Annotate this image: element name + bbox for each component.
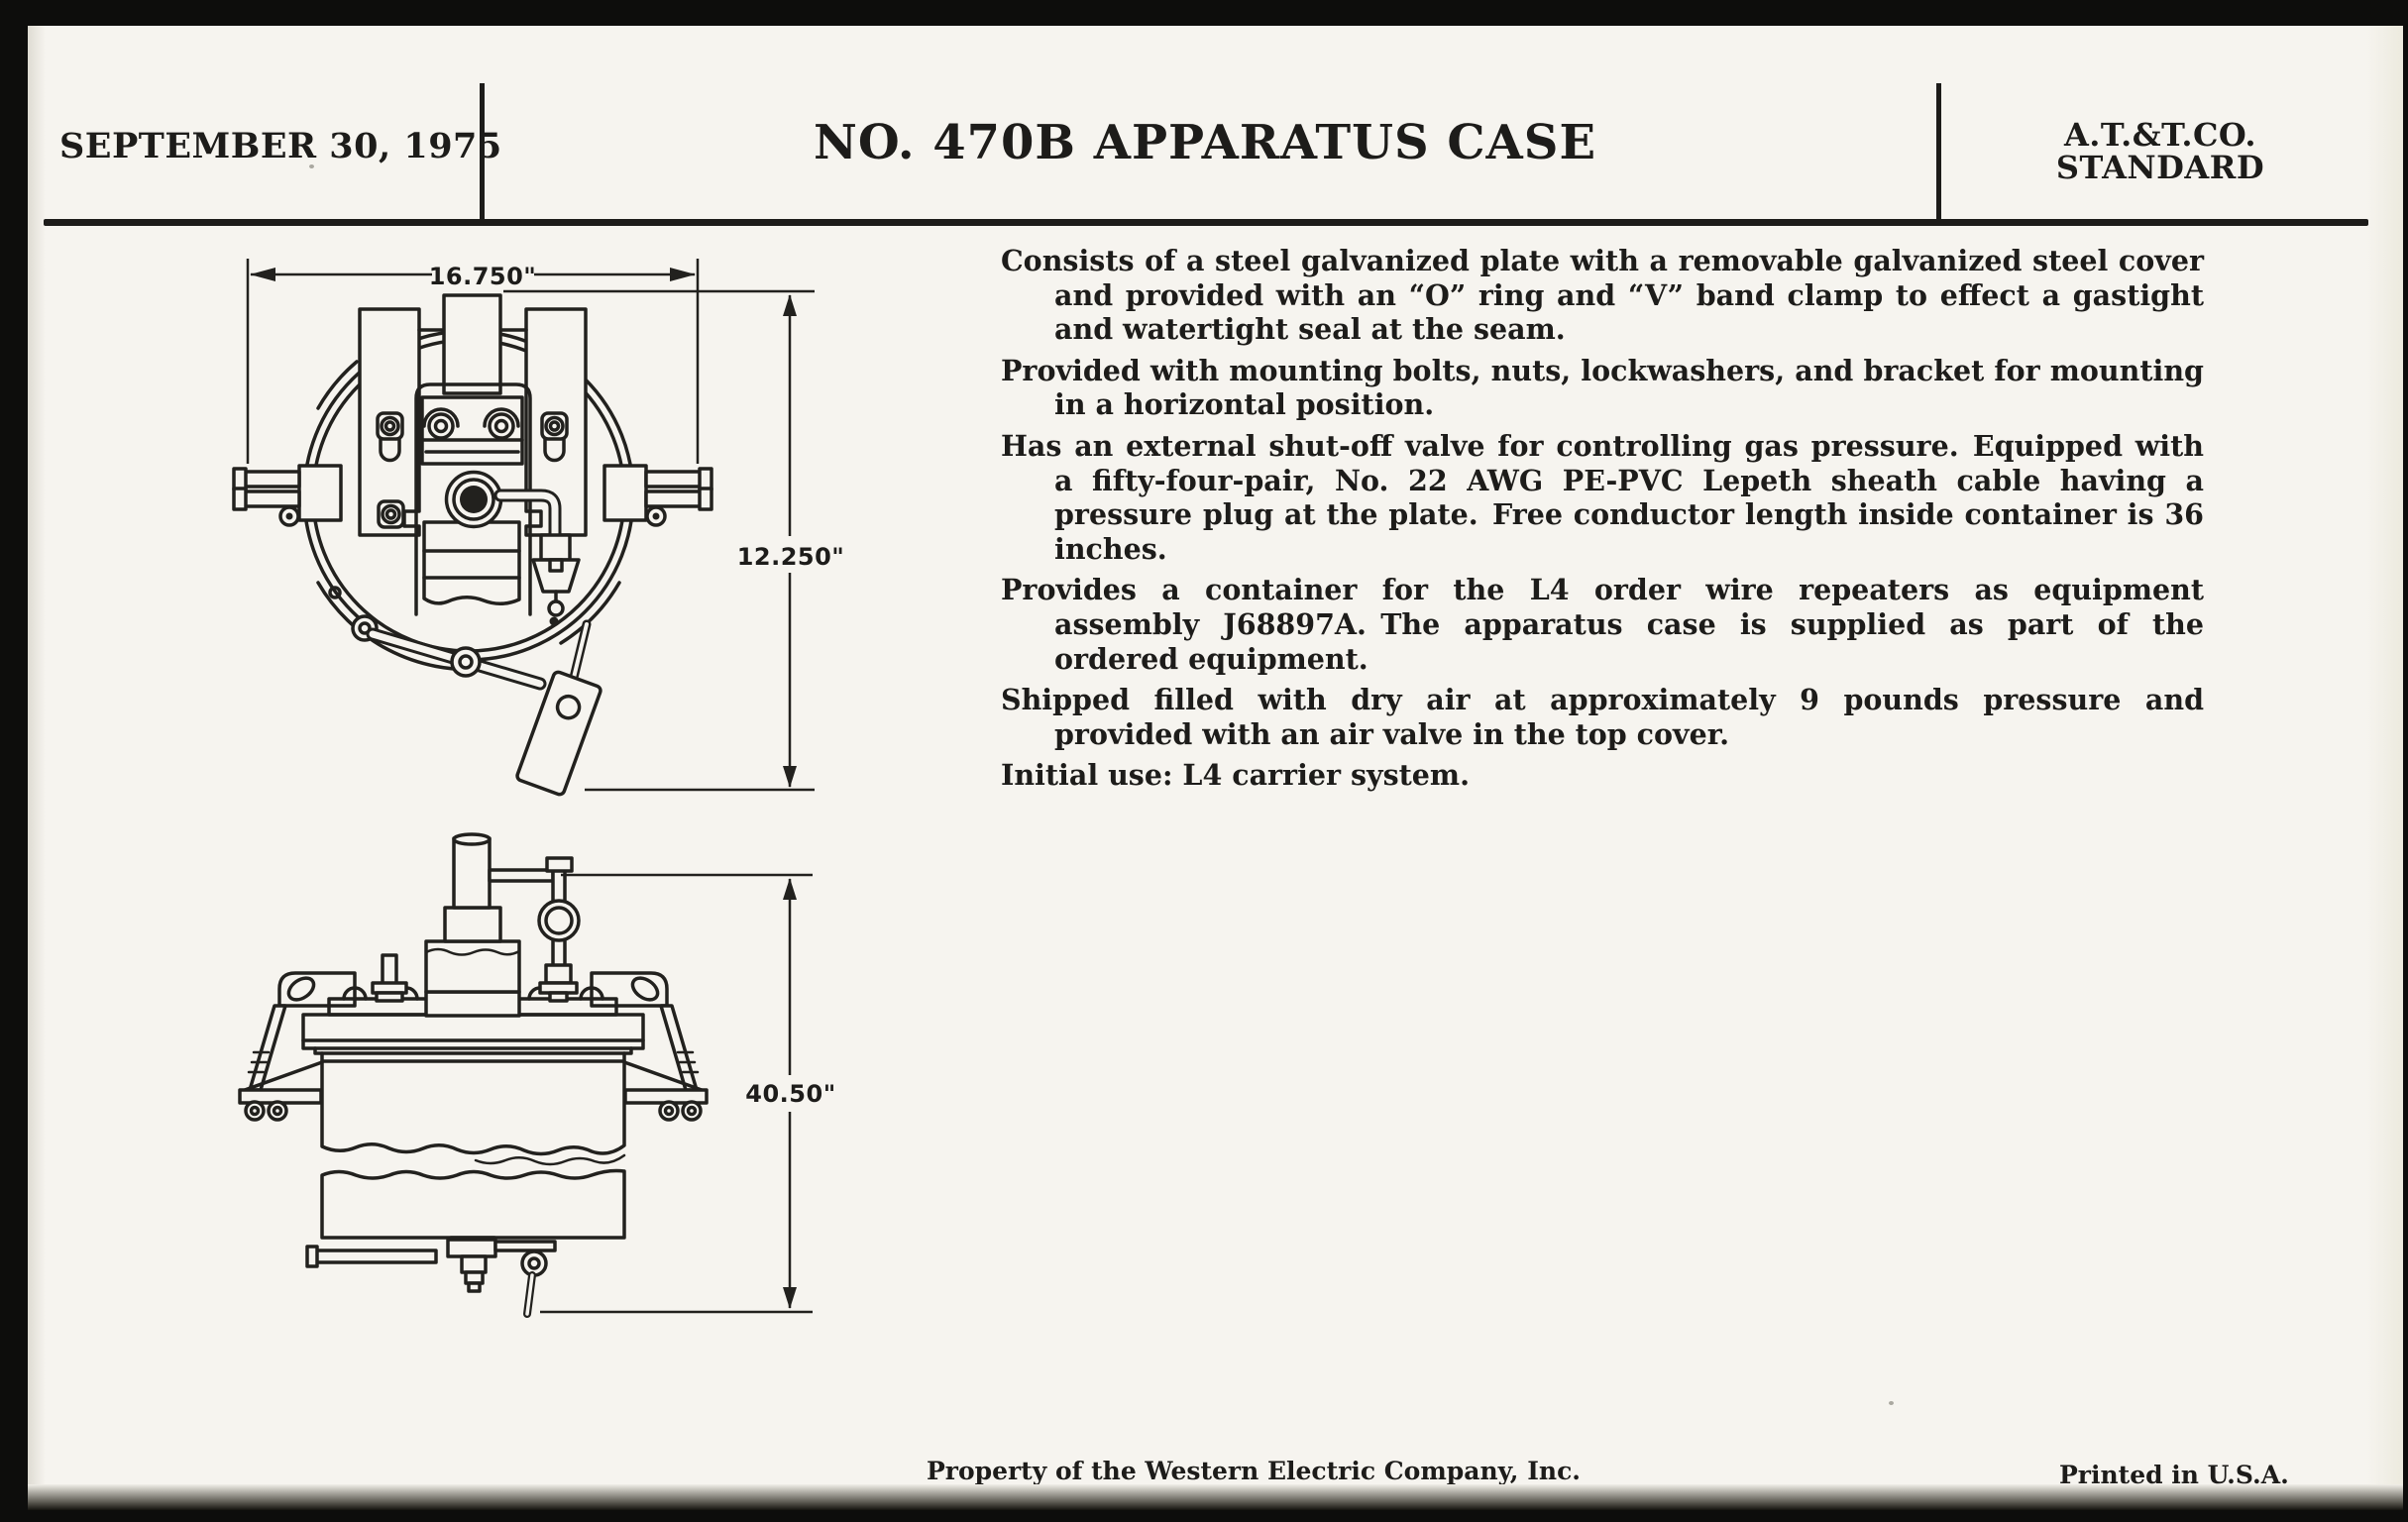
left-side-clamp — [234, 466, 341, 525]
pressure-plug — [447, 473, 501, 527]
side-view-drawing: 40.50" — [228, 832, 842, 1328]
cable-entry-stub — [444, 295, 500, 393]
scan-edge-shadow — [28, 1484, 2403, 1510]
scan-speck — [309, 164, 314, 168]
spec-paragraph: Provided with mounting bolts, nuts, lock… — [1001, 354, 2204, 422]
top-plate — [303, 1015, 643, 1061]
bottom-handle-assembly — [307, 1238, 555, 1314]
header-rule — [44, 219, 2368, 226]
spec-paragraph: Consists of a steel galvanized plate wit… — [1001, 244, 2204, 347]
header-divider-left — [480, 83, 485, 222]
dim-label-width: 16.750" — [429, 263, 537, 290]
org-line-2: STANDARD — [1942, 152, 2378, 184]
dim-label-plate-height: 12.250" — [737, 543, 845, 571]
cable-stack — [426, 834, 519, 1016]
container-body — [322, 1061, 624, 1238]
scanned-spec-sheet: SEPTEMBER 30, 1975 NO. 470B APPARATUS CA… — [0, 0, 2408, 1522]
spec-text-block: Consists of a steel galvanized plate wit… — [1001, 244, 2204, 800]
header-divider-right — [1936, 83, 1941, 222]
org-line-1: A.T.&T.CO. — [1942, 119, 2378, 152]
top-view-drawing: 16.750" 12.250" — [178, 248, 852, 813]
terminal-block — [422, 397, 522, 464]
org-standard-block: A.T.&T.CO. STANDARD — [1942, 119, 2378, 184]
spec-paragraph: Provides a container for the L4 order wi… — [1001, 573, 2204, 676]
connector-box — [424, 522, 519, 603]
spec-paragraph: Has an external shut-off valve for contr… — [1001, 429, 2204, 566]
spec-paragraph: Shipped filled with dry air at approxima… — [1001, 683, 2204, 751]
spec-paragraph: Initial use: L4 carrier system. — [1001, 758, 2204, 793]
page-title: NO. 470B APPARATUS CASE — [595, 115, 1815, 170]
scan-speck — [1889, 1401, 1894, 1405]
issue-date: SEPTEMBER 30, 1975 — [59, 126, 502, 166]
clamp-latch-handle — [353, 616, 602, 796]
dim-label-case-height: 40.50" — [745, 1080, 835, 1108]
right-side-clamp — [604, 466, 711, 525]
footer-property-notice: Property of the Western Electric Company… — [922, 1457, 1586, 1485]
